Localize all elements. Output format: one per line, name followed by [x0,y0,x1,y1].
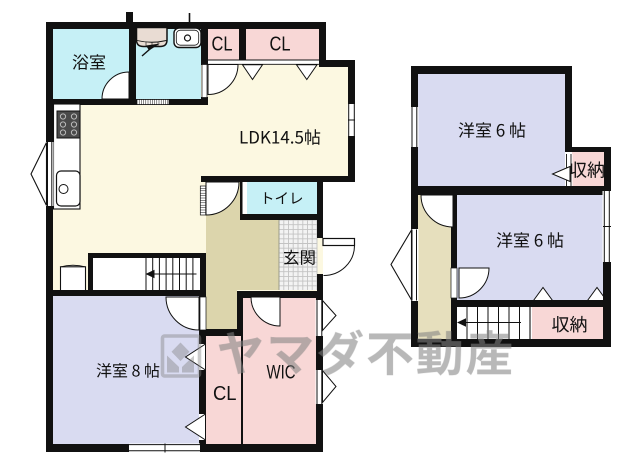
svg-text:CL: CL [270,34,291,56]
svg-text:CL: CL [213,383,237,405]
svg-text:CL: CL [212,34,233,56]
